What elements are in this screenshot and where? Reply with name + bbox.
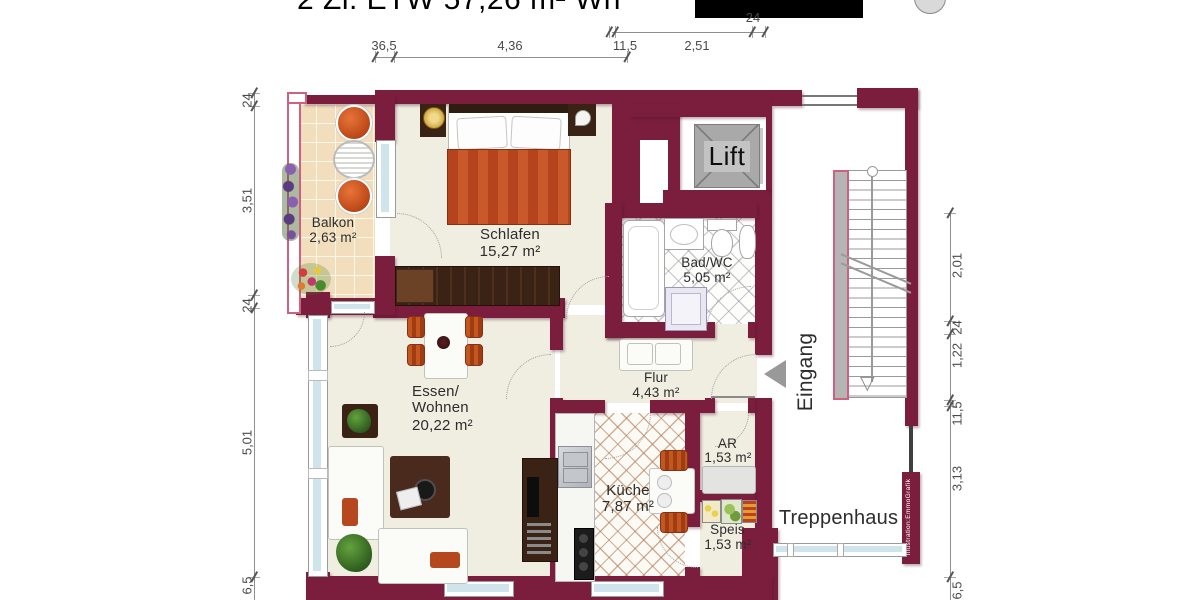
- armchair: [328, 446, 384, 540]
- dimension-label: 24: [240, 81, 255, 121]
- dining-chair: [465, 344, 483, 366]
- window-mullion: [308, 370, 328, 381]
- bed-pillow: [510, 116, 562, 151]
- room-name: AR: [718, 436, 737, 451]
- room-name: Schlafen: [480, 226, 540, 243]
- flower-box: [282, 163, 299, 241]
- storage-crate: [742, 500, 757, 523]
- page-title: 2 Zi. ETW 57,26 m² Wh: [297, 0, 621, 17]
- kitchen-sink: [558, 446, 592, 488]
- dining-chair: [465, 316, 483, 338]
- room-area-balkon: 2,63 m²: [300, 231, 366, 246]
- wall-segment: [748, 398, 755, 413]
- room-label-schlafen: Schlafen: [455, 227, 565, 244]
- room-area: 1,53 m²: [704, 537, 751, 552]
- room-label-bad: Bad/WC: [672, 256, 742, 271]
- dim-value: 24: [950, 320, 965, 334]
- dim-value: 24: [240, 93, 255, 107]
- dim-value: 6,5: [950, 581, 965, 599]
- bed-duvet: [447, 149, 571, 225]
- label-text: Illustration:EmmoGrafik: [905, 479, 912, 556]
- room-area: 5,05 m²: [683, 270, 730, 285]
- dimension-label: 3,13: [950, 459, 965, 499]
- logo-circle: [914, 0, 946, 14]
- room-label-flur: Flur: [625, 371, 687, 386]
- dimension-label: 24: [741, 10, 765, 25]
- label-eingang: Eingang: [794, 327, 816, 417]
- dim-value: 1,22: [950, 343, 965, 368]
- stairwell-handrail-line: [909, 426, 913, 472]
- dim-value: 11,5: [613, 38, 637, 53]
- window-mullion: [787, 543, 794, 557]
- tv-shelf-items: [527, 522, 551, 554]
- label-text: Treppenhaus: [779, 507, 898, 529]
- window-mullion: [837, 543, 844, 557]
- washing-machine: [665, 287, 707, 331]
- wall-segment: [705, 398, 715, 413]
- hall-cushion: [655, 343, 681, 365]
- redaction-box: [695, 0, 863, 18]
- wall-segment: [772, 90, 802, 106]
- dim-value: 36,5: [371, 38, 396, 53]
- wall-segment: [375, 256, 395, 315]
- armchair-cushion: [342, 498, 358, 526]
- dimension-label: 6,5: [950, 571, 965, 600]
- room-area: 7,87 m²: [602, 498, 654, 515]
- wall-segment: [563, 400, 605, 413]
- room-name: Flur: [644, 370, 668, 385]
- entrance-arrow: [764, 360, 786, 388]
- dimension-label: 2,51: [677, 38, 717, 53]
- room-area-schlafen: 15,27 m²: [455, 244, 565, 261]
- burner: [579, 562, 588, 571]
- window-glass: [447, 584, 509, 592]
- dimension-label: 6,5: [240, 566, 255, 600]
- flower-bouquet: [291, 263, 331, 295]
- burner: [579, 548, 588, 557]
- window-glass: [381, 144, 389, 212]
- plant: [336, 534, 372, 572]
- dimension-line: [254, 93, 255, 600]
- balcony-chair: [336, 105, 372, 141]
- sink-basin: [563, 452, 588, 467]
- room-area-wohnen: 20,22 m²: [412, 418, 502, 435]
- wall-segment: [766, 117, 772, 190]
- dimension-line: [612, 32, 765, 33]
- room-area-kueche: 7,87 m²: [592, 499, 664, 516]
- stairs-walkline-start: [867, 166, 878, 177]
- dimension-line: [375, 57, 628, 58]
- room-label-balkon: Balkon: [300, 216, 366, 231]
- dimension-label: 4,36: [490, 38, 530, 53]
- table-plant: [437, 336, 450, 349]
- floor-plan: 2 Zi. ETW 57,26 m² Wh: [0, 0, 1200, 600]
- room-name: Speis: [710, 522, 745, 537]
- washing-machine-lid: [671, 293, 701, 325]
- bathtub: [623, 220, 665, 317]
- double-bed: [448, 104, 570, 225]
- dimension-label: 5,01: [240, 423, 255, 463]
- storage-crate: [702, 500, 721, 523]
- dim-value: 2,51: [684, 38, 709, 53]
- sink: [664, 218, 704, 250]
- credit-text: Illustration:EmmoGrafik: [905, 471, 917, 563]
- wall-segment: [303, 95, 375, 104]
- bidet: [739, 225, 756, 259]
- dim-value: 24: [240, 298, 255, 312]
- dining-chair: [407, 344, 425, 366]
- balcony-table: [333, 140, 375, 179]
- room-name: Wohnen: [412, 399, 469, 416]
- bathtub-basin: [628, 226, 659, 310]
- dim-value: 3,13: [950, 466, 965, 491]
- room-name: Küche: [606, 482, 650, 499]
- wardrobe-shelf: [396, 269, 434, 303]
- dimension-label: 1,22: [950, 336, 965, 376]
- dim-value: 11,5: [950, 401, 965, 425]
- wall-segment: [650, 400, 705, 413]
- sink-basin: [563, 468, 588, 483]
- room-area-bad: 5,05 m²: [672, 271, 742, 286]
- dimension-label: 24: [240, 286, 255, 326]
- room-area-speis: 1,53 m²: [697, 538, 759, 553]
- ar-counter: [702, 466, 756, 494]
- wall-segment: [375, 95, 395, 142]
- room-name: Balkon: [312, 215, 354, 230]
- bedside-lamp: [423, 107, 445, 129]
- kitchen-chair: [660, 450, 688, 471]
- room-label-wohnen-2: Wohnen: [412, 400, 492, 417]
- dim-value: 5,01: [240, 430, 255, 455]
- room-area: 1,53 m²: [704, 450, 751, 465]
- dimension-label: 36,5: [364, 38, 404, 53]
- room-area-flur: 4,43 m²: [625, 386, 687, 401]
- bed-pillow: [456, 116, 508, 151]
- dim-value: 2,01: [950, 253, 965, 278]
- bed-headboard: [449, 104, 569, 113]
- tv-screen: [527, 477, 539, 517]
- room-name: Essen/: [412, 383, 459, 400]
- wall-segment: [375, 90, 772, 104]
- balcony-railing-corner: [287, 92, 307, 104]
- room-area: 15,27 m²: [480, 243, 541, 260]
- dim-value: 6,5: [240, 576, 255, 594]
- wall-segment: [612, 203, 757, 218]
- window-mullion: [308, 468, 328, 479]
- room-label-speis: Speis: [700, 523, 755, 538]
- dimension-label: 3,51: [240, 181, 255, 221]
- hall-cushion: [627, 343, 653, 365]
- stove: [574, 528, 594, 580]
- wall-segment: [755, 215, 772, 355]
- window-glass: [334, 304, 370, 309]
- dimension-label: 2,01: [950, 246, 965, 286]
- dining-chair: [407, 316, 425, 338]
- dimension-label: 11,5: [950, 394, 965, 434]
- wall-segment: [550, 300, 563, 350]
- label-treppenhaus: Treppenhaus: [772, 507, 905, 529]
- lift-car: Lift: [694, 124, 760, 188]
- dimension-label: 11,5: [605, 38, 645, 53]
- lift-label: Lift: [704, 141, 751, 172]
- decor-shell: [575, 110, 591, 126]
- room-area: 20,22 m²: [412, 417, 473, 434]
- dim-value: 4,36: [497, 38, 522, 53]
- lift-door-line: [760, 128, 763, 184]
- wall-segment: [630, 104, 772, 117]
- stairs-arrow-down: ▽: [860, 372, 875, 395]
- room-name: Bad/WC: [681, 255, 732, 270]
- window-glass: [313, 319, 321, 571]
- plant: [347, 409, 371, 433]
- burner: [579, 534, 588, 543]
- sink-basin: [670, 224, 698, 245]
- toilet-bowl: [711, 229, 733, 257]
- sofa-cushion: [430, 552, 460, 568]
- dim-value: 3,51: [240, 188, 255, 213]
- storage-crate: [721, 499, 742, 524]
- wall-segment: [306, 576, 772, 600]
- dim-value: 24: [746, 10, 760, 25]
- window-glass: [594, 584, 659, 592]
- label-text: Eingang: [794, 333, 817, 411]
- room-area: 4,43 m²: [632, 385, 679, 400]
- entry-door-leaf: [711, 396, 755, 398]
- room-area-ar: 1,53 m²: [697, 451, 759, 466]
- room-area: 2,63 m²: [309, 230, 356, 245]
- balcony-chair: [336, 178, 372, 214]
- stairwell-top-railing: [802, 95, 857, 106]
- stairs-handrail: [833, 170, 849, 400]
